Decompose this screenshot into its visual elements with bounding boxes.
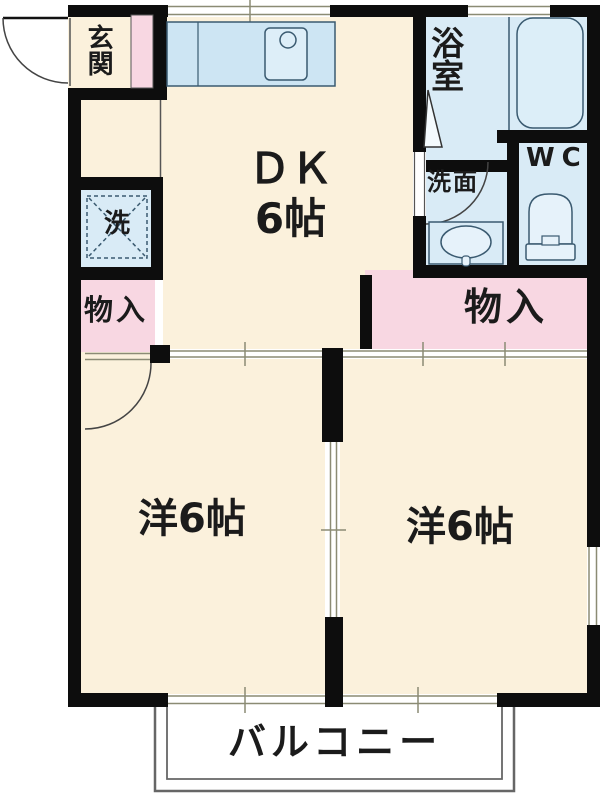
corridor-floor xyxy=(78,88,163,190)
room-right-label: 洋6帖 xyxy=(406,506,514,549)
wall-closet-right-left xyxy=(360,275,372,352)
wall-genkan-bottom xyxy=(68,88,167,100)
closet-right-label: 物入 xyxy=(464,287,548,328)
wall-bath-left-upper xyxy=(413,5,426,152)
wall-wc-left xyxy=(507,130,519,265)
laundry-label: 洗 xyxy=(104,210,130,238)
floorplan: 玄関 ＤＫ 6帖 浴室 洗面 WC 洗 物入 物入 洋6帖 洋6帖 バルコニー xyxy=(0,0,600,796)
wall-bottom-left xyxy=(68,693,168,707)
wall-closet-left-post xyxy=(150,345,170,363)
dk-label: ＤＫ xyxy=(228,146,353,191)
wall-center-post-bottom xyxy=(325,617,343,707)
genkan-label: 玄関 xyxy=(84,24,112,76)
wall-genkan-right xyxy=(153,5,167,100)
wall-closet-right-top xyxy=(413,265,587,278)
entrance-door xyxy=(3,18,70,86)
balcony-label: バルコニー xyxy=(210,722,460,763)
wall-top-mid xyxy=(330,5,468,17)
room-left-label: 洋6帖 xyxy=(138,498,246,541)
room-right-side-window xyxy=(587,547,600,625)
wall-center-post-top xyxy=(322,348,343,442)
wall-laundry-right xyxy=(151,177,163,280)
wall-right-upper xyxy=(587,5,600,547)
toilet-label: WC xyxy=(526,144,588,172)
dk-size-label: 6帖 xyxy=(228,196,353,241)
wall-laundry-bottom xyxy=(68,267,163,280)
bathroom-label: 浴室 xyxy=(427,26,463,92)
wall-bottom-right xyxy=(497,693,600,707)
closet-left-label: 物入 xyxy=(84,295,148,326)
wall-laundry-top xyxy=(68,177,163,190)
washroom-label: 洗面 xyxy=(427,170,479,196)
